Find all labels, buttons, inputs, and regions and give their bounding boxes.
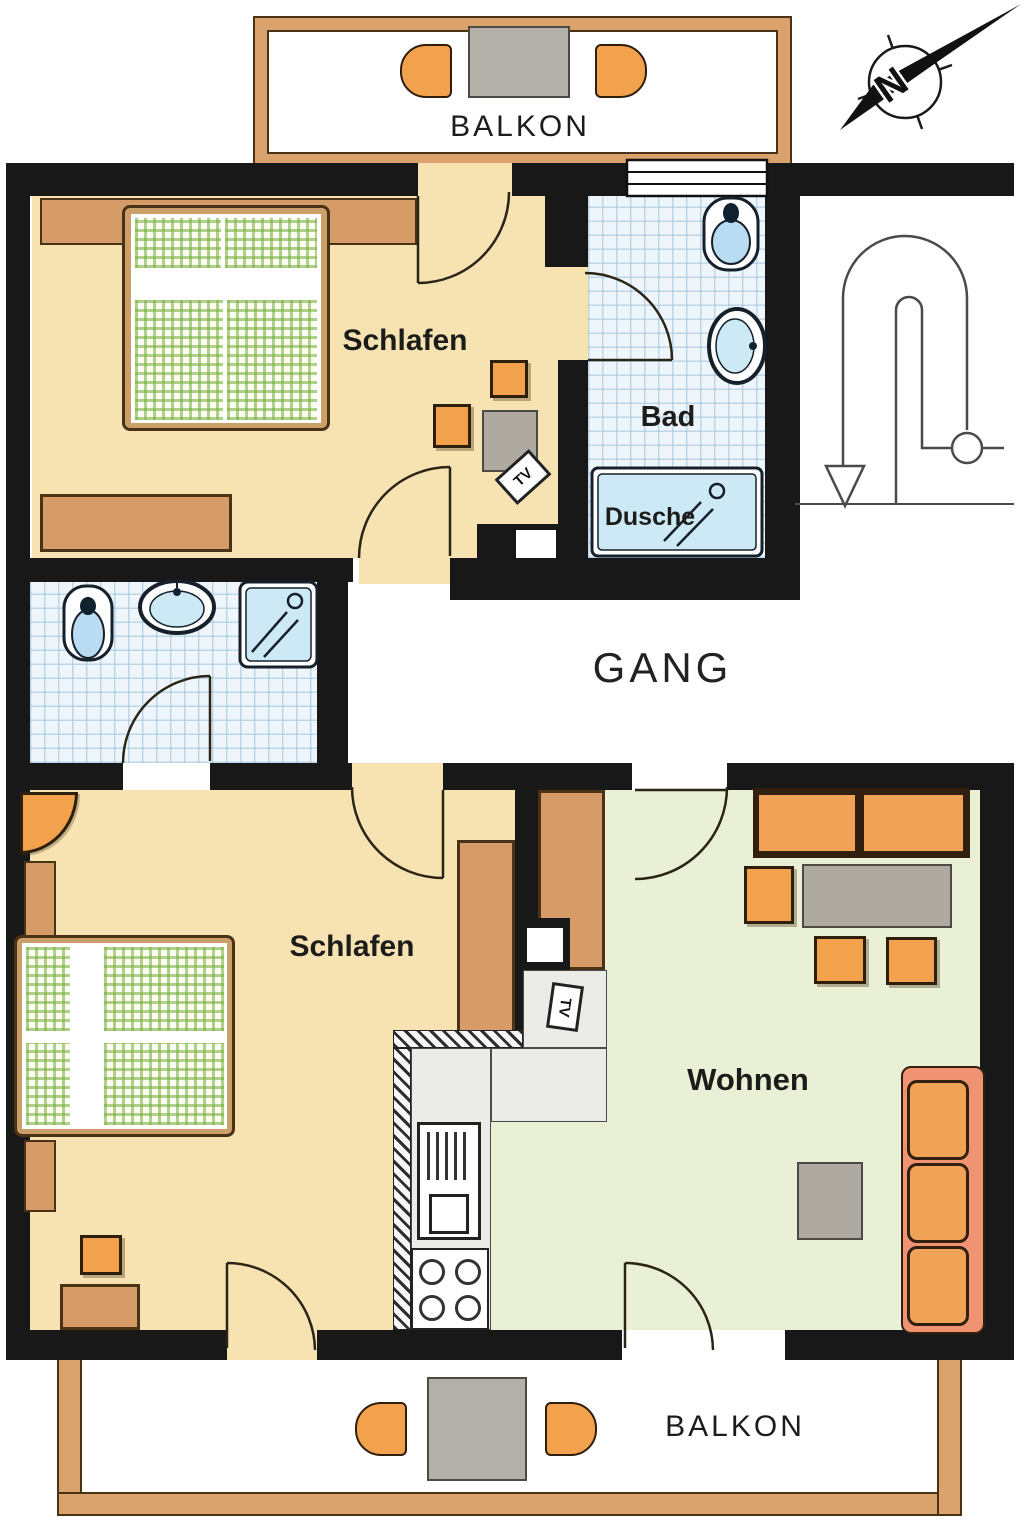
bath-mid-toilet-icon xyxy=(64,586,112,660)
door-arc-bed2-balcony xyxy=(227,1263,315,1350)
dusche-label: Dusche xyxy=(600,503,700,532)
balcony-top-label: BALKON xyxy=(430,110,610,144)
gang-label: GANG xyxy=(580,644,745,692)
bath-mid-sink-icon xyxy=(140,581,214,633)
bad-sink-icon xyxy=(709,309,765,383)
door-arc-living-hall xyxy=(635,787,727,879)
plan-overlay: N xyxy=(0,0,1024,1536)
staircase-icon xyxy=(795,236,1014,506)
tv-label: TV xyxy=(510,464,536,489)
door-arc-bed2-hall xyxy=(352,787,443,878)
balcony-bottom-label: BALKON xyxy=(645,1410,825,1444)
door-arc-bad xyxy=(585,273,672,360)
bedroom-bottom-label: Schlafen xyxy=(272,930,432,964)
compass-icon: N xyxy=(840,4,1021,130)
tv-label: TV xyxy=(555,996,575,1017)
door-arc-bath-mid xyxy=(123,676,210,763)
compass-needle-icon xyxy=(840,4,1021,130)
door-arcs xyxy=(123,192,727,1350)
stair-arrow-icon xyxy=(826,466,864,506)
door-arc-living-balcony xyxy=(625,1263,713,1350)
bedroom-top-label: Schlafen xyxy=(330,324,480,358)
bath-mid-shower-icon xyxy=(240,582,317,667)
wohnen-label: Wohnen xyxy=(668,1062,828,1098)
door-arc-balcony-bed1 xyxy=(418,192,509,283)
tv-kitchen-wall: TV xyxy=(546,982,584,1032)
floor-plan: N xyxy=(0,0,1024,1536)
bad-toilet-icon xyxy=(704,198,758,270)
bad-label: Bad xyxy=(618,401,718,434)
window-icon xyxy=(627,160,767,196)
door-arc-bed1-hall xyxy=(359,467,450,558)
